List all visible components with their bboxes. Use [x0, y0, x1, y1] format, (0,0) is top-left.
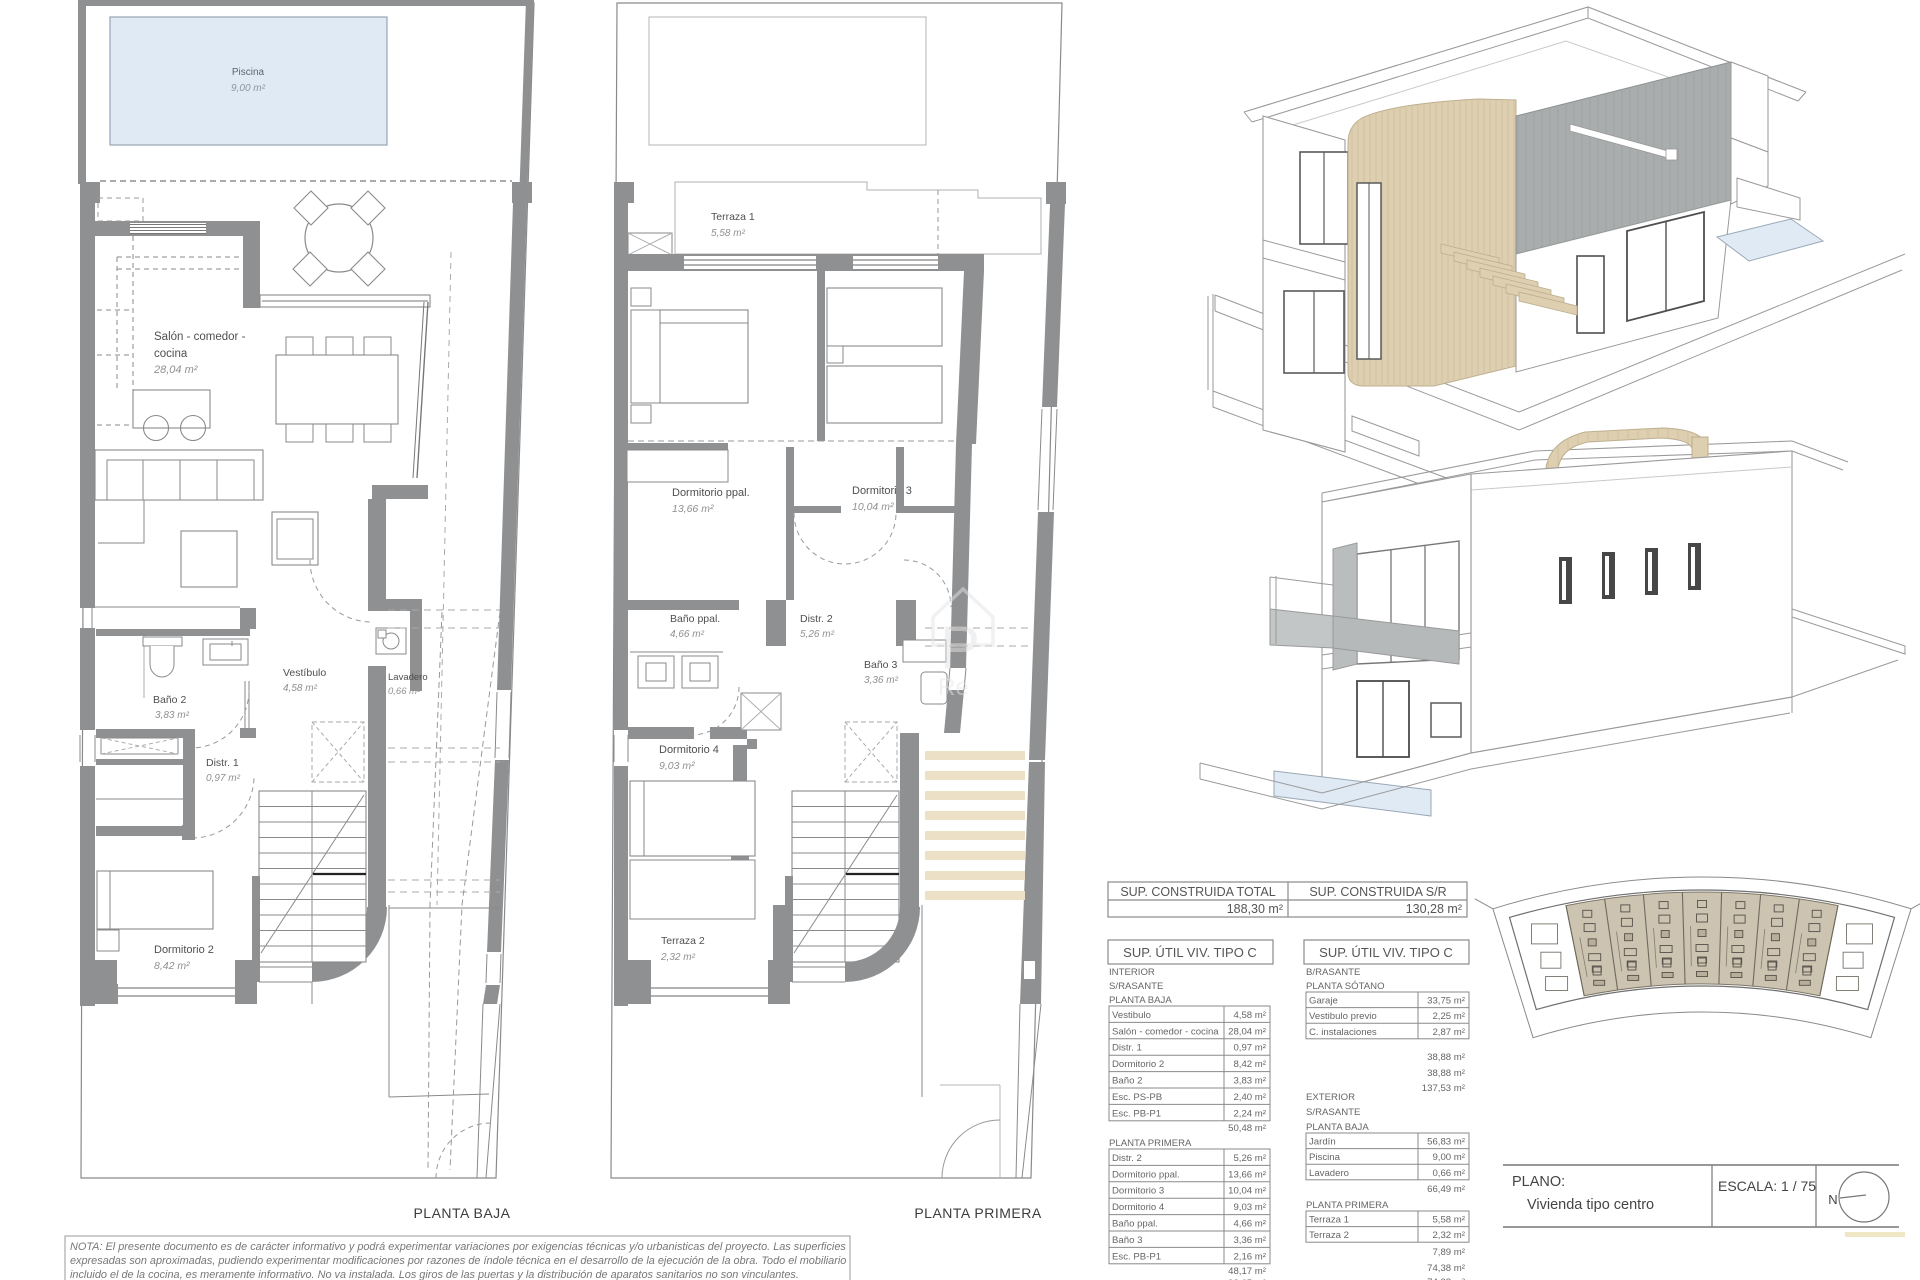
svg-text:Baño ppal.: Baño ppal. — [670, 613, 720, 625]
svg-text:4,66 m²: 4,66 m² — [670, 629, 705, 640]
svg-text:5,58 m²: 5,58 m² — [711, 228, 746, 239]
svg-text:Vestíbulo: Vestíbulo — [283, 667, 326, 679]
svg-text:S/RASANTE: S/RASANTE — [1306, 1107, 1360, 1118]
svg-text:10,04 m²: 10,04 m² — [1228, 1186, 1267, 1197]
svg-text:2,32 m²: 2,32 m² — [660, 952, 696, 963]
svg-text:Baño 2: Baño 2 — [153, 694, 186, 706]
svg-text:Dormitorio 4: Dormitorio 4 — [659, 744, 719, 756]
svg-text:2,24 m²: 2,24 m² — [1233, 1108, 1266, 1119]
svg-text:Vivienda tipo centro: Vivienda tipo centro — [1527, 1197, 1654, 1213]
svg-text:9,03 m²: 9,03 m² — [1233, 1202, 1266, 1213]
svg-text:Dormitorio 4: Dormitorio 4 — [1112, 1202, 1165, 1213]
svg-text:33,75 m²: 33,75 m² — [1427, 996, 1466, 1007]
svg-text:EXTERIOR: EXTERIOR — [1306, 1092, 1355, 1103]
svg-text:PLANTA BAJA: PLANTA BAJA — [413, 1205, 510, 1221]
svg-text:S/RASANTE: S/RASANTE — [1109, 981, 1163, 992]
svg-text:3,83 m²: 3,83 m² — [1233, 1076, 1266, 1087]
svg-text:PLANTA PRIMERA: PLANTA PRIMERA — [1109, 1138, 1192, 1149]
svg-text:9,00 m²: 9,00 m² — [1432, 1152, 1465, 1163]
svg-text:Piscina: Piscina — [1309, 1152, 1341, 1163]
svg-text:B/RASANTE: B/RASANTE — [1306, 967, 1360, 978]
svg-text:Dormitorio 3: Dormitorio 3 — [1112, 1186, 1164, 1197]
svg-text:expresadas son aproximadas, pu: expresadas son aproximadas, pudiendo exp… — [70, 1255, 846, 1267]
svg-text:Esc. PB-P1: Esc. PB-P1 — [1112, 1108, 1161, 1119]
svg-text:8,42 m²: 8,42 m² — [154, 960, 190, 972]
svg-text:Vestibulo previo: Vestibulo previo — [1309, 1011, 1377, 1022]
svg-text:28,04 m²: 28,04 m² — [1228, 1026, 1267, 1037]
svg-text:Terraza 2: Terraza 2 — [1309, 1230, 1349, 1241]
svg-text:Salón - comedor -: Salón - comedor - — [154, 331, 246, 343]
svg-text:4,58 m²: 4,58 m² — [283, 683, 318, 694]
svg-text:5,26 m²: 5,26 m² — [1233, 1153, 1266, 1164]
svg-text:2,87 m²: 2,87 m² — [1432, 1027, 1465, 1038]
svg-text:SUP. CONSTRUIDA TOTAL: SUP. CONSTRUIDA TOTAL — [1120, 885, 1275, 899]
svg-text:0,66 m²: 0,66 m² — [388, 686, 421, 697]
svg-text:9,00 m²: 9,00 m² — [231, 83, 266, 94]
svg-text:56,83 m²: 56,83 m² — [1427, 1137, 1466, 1148]
svg-text:4,66 m²: 4,66 m² — [1233, 1219, 1266, 1230]
svg-text:13,66 m²: 13,66 m² — [672, 503, 714, 515]
svg-text:188,30 m²: 188,30 m² — [1227, 902, 1283, 916]
svg-text:66,49 m²: 66,49 m² — [1427, 1184, 1466, 1195]
svg-text:Baño 3: Baño 3 — [864, 659, 897, 671]
svg-text:Baño 3: Baño 3 — [1112, 1235, 1142, 1246]
svg-text:9,03 m²: 9,03 m² — [659, 760, 695, 772]
svg-text:Distr. 2: Distr. 2 — [1112, 1153, 1142, 1164]
svg-text:3,83 m²: 3,83 m² — [155, 710, 190, 721]
svg-text:P: P — [940, 614, 980, 681]
svg-text:Garaje: Garaje — [1309, 996, 1338, 1007]
svg-text:Terraza 2: Terraza 2 — [661, 935, 705, 947]
svg-text:Vestibulo: Vestibulo — [1112, 1010, 1151, 1021]
svg-text:Esc. PS-PB: Esc. PS-PB — [1112, 1092, 1162, 1103]
svg-text:13,66 m²: 13,66 m² — [1228, 1169, 1267, 1180]
svg-text:Esc. PB-P1: Esc. PB-P1 — [1112, 1251, 1161, 1262]
svg-text:7,89 m²: 7,89 m² — [1432, 1247, 1465, 1258]
svg-text:ESCALA: 1 / 75: ESCALA: 1 / 75 — [1718, 1178, 1816, 1194]
svg-text:N: N — [1828, 1192, 1837, 1207]
svg-text:3,36 m²: 3,36 m² — [864, 675, 899, 686]
svg-text:Jardín: Jardín — [1309, 1137, 1336, 1148]
svg-text:Baño 2: Baño 2 — [1112, 1076, 1142, 1087]
svg-text:48,17 m²: 48,17 m² — [1228, 1266, 1267, 1277]
svg-text:Lavadero: Lavadero — [388, 672, 428, 683]
svg-text:4,58 m²: 4,58 m² — [1233, 1010, 1266, 1021]
svg-text:38,88 m²: 38,88 m² — [1427, 1052, 1466, 1063]
svg-text:28,04 m²: 28,04 m² — [153, 364, 198, 376]
svg-text:Terraza 1: Terraza 1 — [1309, 1215, 1349, 1226]
svg-text:PLANTA PRIMERA: PLANTA PRIMERA — [914, 1205, 1041, 1221]
svg-text:5,58 m²: 5,58 m² — [1432, 1215, 1465, 1226]
svg-text:5,26 m²: 5,26 m² — [800, 629, 835, 640]
svg-text:SUP. ÚTIL VIV. TIPO C: SUP. ÚTIL VIV. TIPO C — [1123, 945, 1257, 960]
svg-text:2,16 m²: 2,16 m² — [1233, 1251, 1266, 1262]
svg-text:Terraza 1: Terraza 1 — [711, 211, 755, 223]
svg-text:137,53 m²: 137,53 m² — [1422, 1083, 1466, 1094]
svg-text:PLANTA PRIMERA: PLANTA PRIMERA — [1306, 1200, 1389, 1211]
svg-text:PLANO:: PLANO: — [1512, 1174, 1565, 1190]
svg-text:Baño ppal.: Baño ppal. — [1112, 1219, 1158, 1230]
svg-text:2,40 m²: 2,40 m² — [1233, 1092, 1266, 1103]
svg-text:C. instalaciones: C. instalaciones — [1309, 1027, 1377, 1038]
svg-text:Dormitorio ppal.: Dormitorio ppal. — [672, 487, 750, 499]
svg-text:PLANTA SÓTANO: PLANTA SÓTANO — [1306, 981, 1385, 992]
svg-text:SUP. ÚTIL VIV. TIPO C: SUP. ÚTIL VIV. TIPO C — [1319, 945, 1453, 960]
svg-text:0,97 m²: 0,97 m² — [1233, 1043, 1266, 1054]
svg-text:Distr. 1: Distr. 1 — [206, 757, 239, 769]
svg-text:cocina: cocina — [154, 348, 188, 360]
svg-text:Distr. 2: Distr. 2 — [800, 613, 833, 625]
svg-text:Dormitorio 2: Dormitorio 2 — [154, 944, 214, 956]
svg-text:Dormitorio ppal.: Dormitorio ppal. — [1112, 1169, 1180, 1180]
svg-text:10,04 m²: 10,04 m² — [852, 501, 894, 513]
svg-text:Re: Re — [938, 674, 969, 701]
svg-text:NOTA: El presente documento es: NOTA: El presente documento es de caráct… — [70, 1241, 846, 1253]
svg-text:SUP. CONSTRUIDA S/R: SUP. CONSTRUIDA S/R — [1309, 885, 1446, 899]
svg-text:Piscina: Piscina — [232, 67, 265, 78]
svg-text:PLANTA BAJA: PLANTA BAJA — [1306, 1122, 1369, 1133]
svg-text:130,28 m²: 130,28 m² — [1406, 902, 1462, 916]
svg-text:38,88 m²: 38,88 m² — [1427, 1068, 1466, 1079]
svg-text:Lavadero: Lavadero — [1309, 1168, 1349, 1179]
svg-text:3,36 m²: 3,36 m² — [1233, 1235, 1266, 1246]
svg-text:2,32 m²: 2,32 m² — [1432, 1230, 1465, 1241]
svg-text:Salón - comedor - cocina: Salón - comedor - cocina — [1112, 1026, 1219, 1037]
svg-text:50,48 m²: 50,48 m² — [1228, 1123, 1267, 1134]
svg-text:incluido el de la cocina, es m: incluido el de la cocina, es meramente i… — [70, 1269, 799, 1280]
svg-text:Dormitorio 2: Dormitorio 2 — [1112, 1059, 1164, 1070]
svg-text:2,25 m²: 2,25 m² — [1432, 1011, 1465, 1022]
svg-text:Distr. 1: Distr. 1 — [1112, 1043, 1142, 1054]
svg-text:0,97 m²: 0,97 m² — [206, 773, 241, 784]
svg-text:0,66 m²: 0,66 m² — [1432, 1168, 1465, 1179]
svg-text:INTERIOR: INTERIOR — [1109, 967, 1155, 978]
svg-text:PLANTA BAJA: PLANTA BAJA — [1109, 995, 1172, 1006]
svg-text:74,38 m²: 74,38 m² — [1427, 1263, 1466, 1274]
svg-text:8,42 m²: 8,42 m² — [1233, 1059, 1266, 1070]
